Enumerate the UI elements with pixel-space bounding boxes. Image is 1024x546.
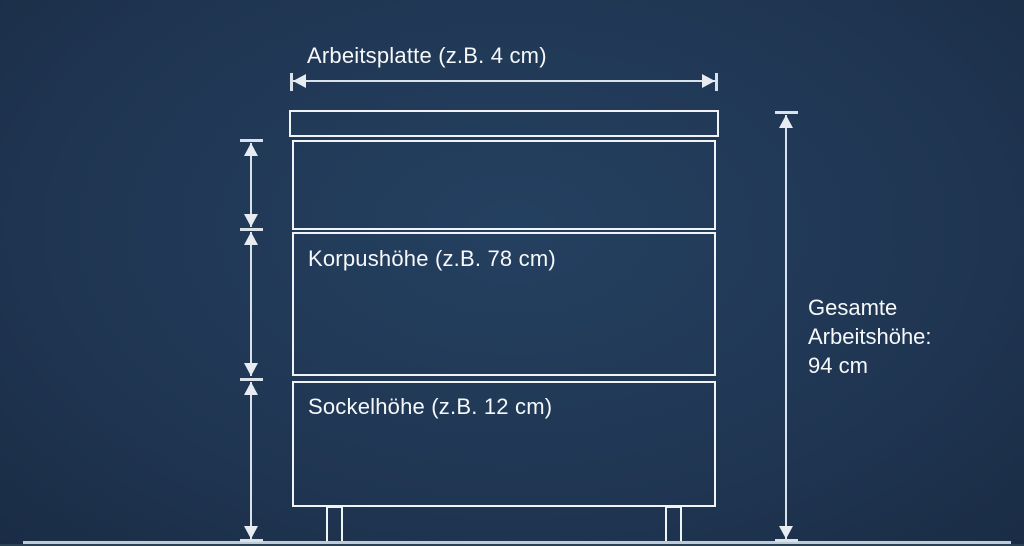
dimension-tick	[240, 228, 263, 231]
sockel-label: Sockelhöhe (z.B. 12 cm)	[308, 394, 552, 420]
dimension-tick	[240, 378, 263, 381]
arrow-up-icon	[244, 232, 258, 245]
total-height-label-line1: Gesamte	[808, 293, 932, 322]
arrow-down-icon	[244, 214, 258, 227]
dimension-tick	[775, 539, 798, 542]
dimension-tick	[240, 539, 263, 542]
dimension-tick	[240, 139, 263, 142]
arrow-down-icon	[779, 526, 793, 539]
dimension-end-tick-right	[715, 73, 718, 91]
arrow-up-icon	[779, 115, 793, 128]
korpus-label: Korpushöhe (z.B. 78 cm)	[308, 246, 556, 272]
left-leg	[326, 506, 343, 543]
top-drawer-rect	[292, 140, 716, 230]
right-leg	[665, 506, 682, 543]
dimension-line	[293, 80, 715, 82]
worktop-label: Arbeitsplatte (z.B. 4 cm)	[307, 43, 547, 69]
total-height-label-line3: 94 cm	[808, 351, 932, 380]
korpus-height-dimension	[243, 232, 259, 376]
dimension-line	[250, 232, 252, 376]
total-height-label: Gesamte Arbeitshöhe: 94 cm	[808, 293, 932, 380]
dimension-tick	[775, 111, 798, 114]
arrow-right-icon	[702, 74, 715, 88]
arrow-up-icon	[244, 382, 258, 395]
arrow-up-icon	[244, 143, 258, 156]
dimension-line	[785, 115, 787, 539]
arrow-down-icon	[244, 526, 258, 539]
dimension-line	[250, 382, 252, 539]
total-height-dimension	[778, 115, 794, 539]
drawer-height-dimension	[243, 143, 259, 227]
diagram-canvas: Arbeitsplatte (z.B. 4 cm) Korpushöhe (z.…	[0, 0, 1024, 546]
arrow-down-icon	[244, 363, 258, 376]
total-height-label-line2: Arbeitshöhe:	[808, 322, 932, 351]
worktop-dimension-arrow	[293, 73, 715, 89]
worktop-rect	[289, 110, 719, 137]
arrow-left-icon	[293, 74, 306, 88]
sockel-height-dimension	[243, 382, 259, 539]
